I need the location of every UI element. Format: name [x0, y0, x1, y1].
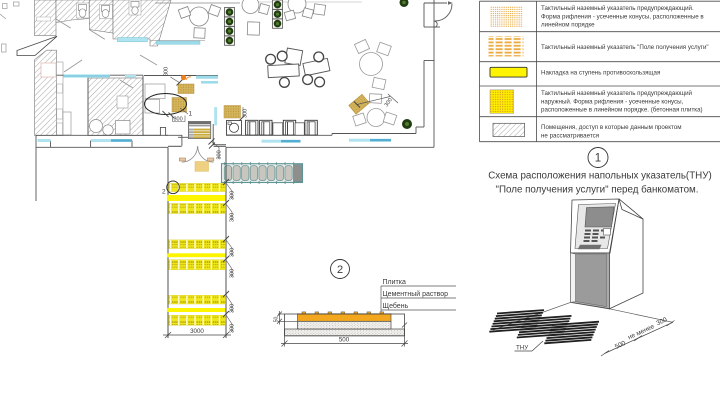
svg-text:500: 500	[339, 337, 350, 344]
svg-text:300: 300	[230, 213, 236, 222]
svg-text:2: 2	[337, 264, 343, 276]
svg-text:300: 300	[384, 97, 394, 108]
svg-text:Тактильный наземный указатель: Тактильный наземный указатель предупрежд…	[541, 90, 693, 97]
svg-text:Плитка: Плитка	[383, 279, 406, 286]
svg-text:300: 300	[174, 116, 183, 122]
svg-text:Тактильный наземный указатель: Тактильный наземный указатель "Поле полу…	[541, 44, 709, 51]
svg-text:линейном порядке: линейном порядке	[541, 22, 595, 29]
svg-text:ТНУ: ТНУ	[516, 345, 528, 352]
svg-text:Накладка на ступень противоско: Накладка на ступень противоскользящая	[541, 69, 660, 76]
svg-text:300: 300	[230, 191, 236, 200]
svg-text:300: 300	[164, 67, 170, 76]
svg-text:300: 300	[230, 269, 236, 278]
svg-text:300: 300	[217, 150, 223, 159]
svg-text:1: 1	[595, 153, 601, 165]
svg-text:1: 1	[189, 111, 193, 118]
svg-text:Помещения, доступ в которые да: Помещения, доступ в которые данным проек…	[541, 124, 681, 131]
svg-text:Тактильный наземный указатель: Тактильный наземный указатель предупрежд…	[541, 5, 694, 12]
svg-text:2: 2	[162, 189, 166, 196]
svg-text:Щебень: Щебень	[383, 302, 409, 310]
svg-text:500: 500	[614, 340, 627, 351]
svg-text:50: 50	[274, 317, 280, 323]
svg-text:"Поле получения услуги" перед: "Поле получения услуги" перед банкоматом…	[495, 185, 698, 196]
svg-text:3000: 3000	[190, 328, 204, 335]
svg-text:не рассматривается: не рассматривается	[541, 133, 599, 140]
svg-text:300: 300	[230, 248, 236, 257]
svg-text:наружный. Форма рифления - усе: наружный. Форма рифления - усеченные кон…	[541, 98, 684, 105]
svg-text:Схема расположения напольных у: Схема расположения напольных указатель(Т…	[488, 171, 712, 182]
svg-text:Цементный раствор: Цементный раствор	[383, 290, 449, 298]
svg-text:300: 300	[230, 304, 236, 313]
svg-text:300: 300	[230, 324, 236, 333]
svg-text:расположенные в линейном поряд: расположенные в линейном порядке. (бетон…	[541, 107, 703, 114]
svg-text:Форма рифления - усеченные кон: Форма рифления - усеченные конусы, распо…	[541, 13, 704, 20]
